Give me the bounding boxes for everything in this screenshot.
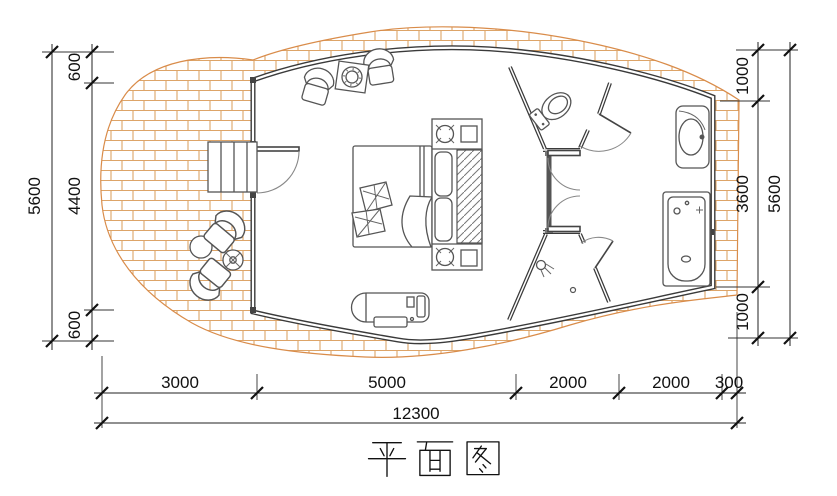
- floor-plan-page: 600 4400 600 5600 1000 3600 1000 5600 30…: [0, 0, 837, 496]
- page-title: 平面图: [350, 428, 520, 480]
- dim-label: 5600: [765, 175, 784, 213]
- dim-label: 5000: [368, 373, 406, 392]
- stairs-icon: [208, 142, 257, 192]
- floor-plan-drawing: 600 4400 600 5600 1000 3600 1000 5600 30…: [0, 0, 837, 496]
- side-table-icon: [335, 61, 369, 93]
- dim-label: 5600: [25, 177, 44, 215]
- dim-label: 2000: [549, 373, 587, 392]
- plant-icon: [223, 250, 243, 270]
- double-bed-icon: [352, 146, 432, 247]
- washbasin-icon: [676, 106, 709, 168]
- dim-label: 4400: [65, 177, 84, 215]
- wardrobe-icon: [457, 150, 482, 243]
- dim-label: 3000: [161, 373, 199, 392]
- dim-label: 2000: [652, 373, 690, 392]
- bathtub-icon: [663, 192, 710, 286]
- headboard-unit: [432, 119, 482, 270]
- dim-label: 600: [65, 53, 84, 81]
- dim-label: 12300: [392, 404, 439, 423]
- dim-label: 300: [715, 373, 743, 392]
- dim-label: 1000: [733, 57, 752, 95]
- dim-label: 1000: [733, 293, 752, 331]
- dim-label: 3600: [733, 175, 752, 213]
- dim-label: 600: [65, 311, 84, 339]
- bench-icon: [352, 293, 430, 327]
- dimension-left: 600 4400 600 5600: [25, 44, 114, 350]
